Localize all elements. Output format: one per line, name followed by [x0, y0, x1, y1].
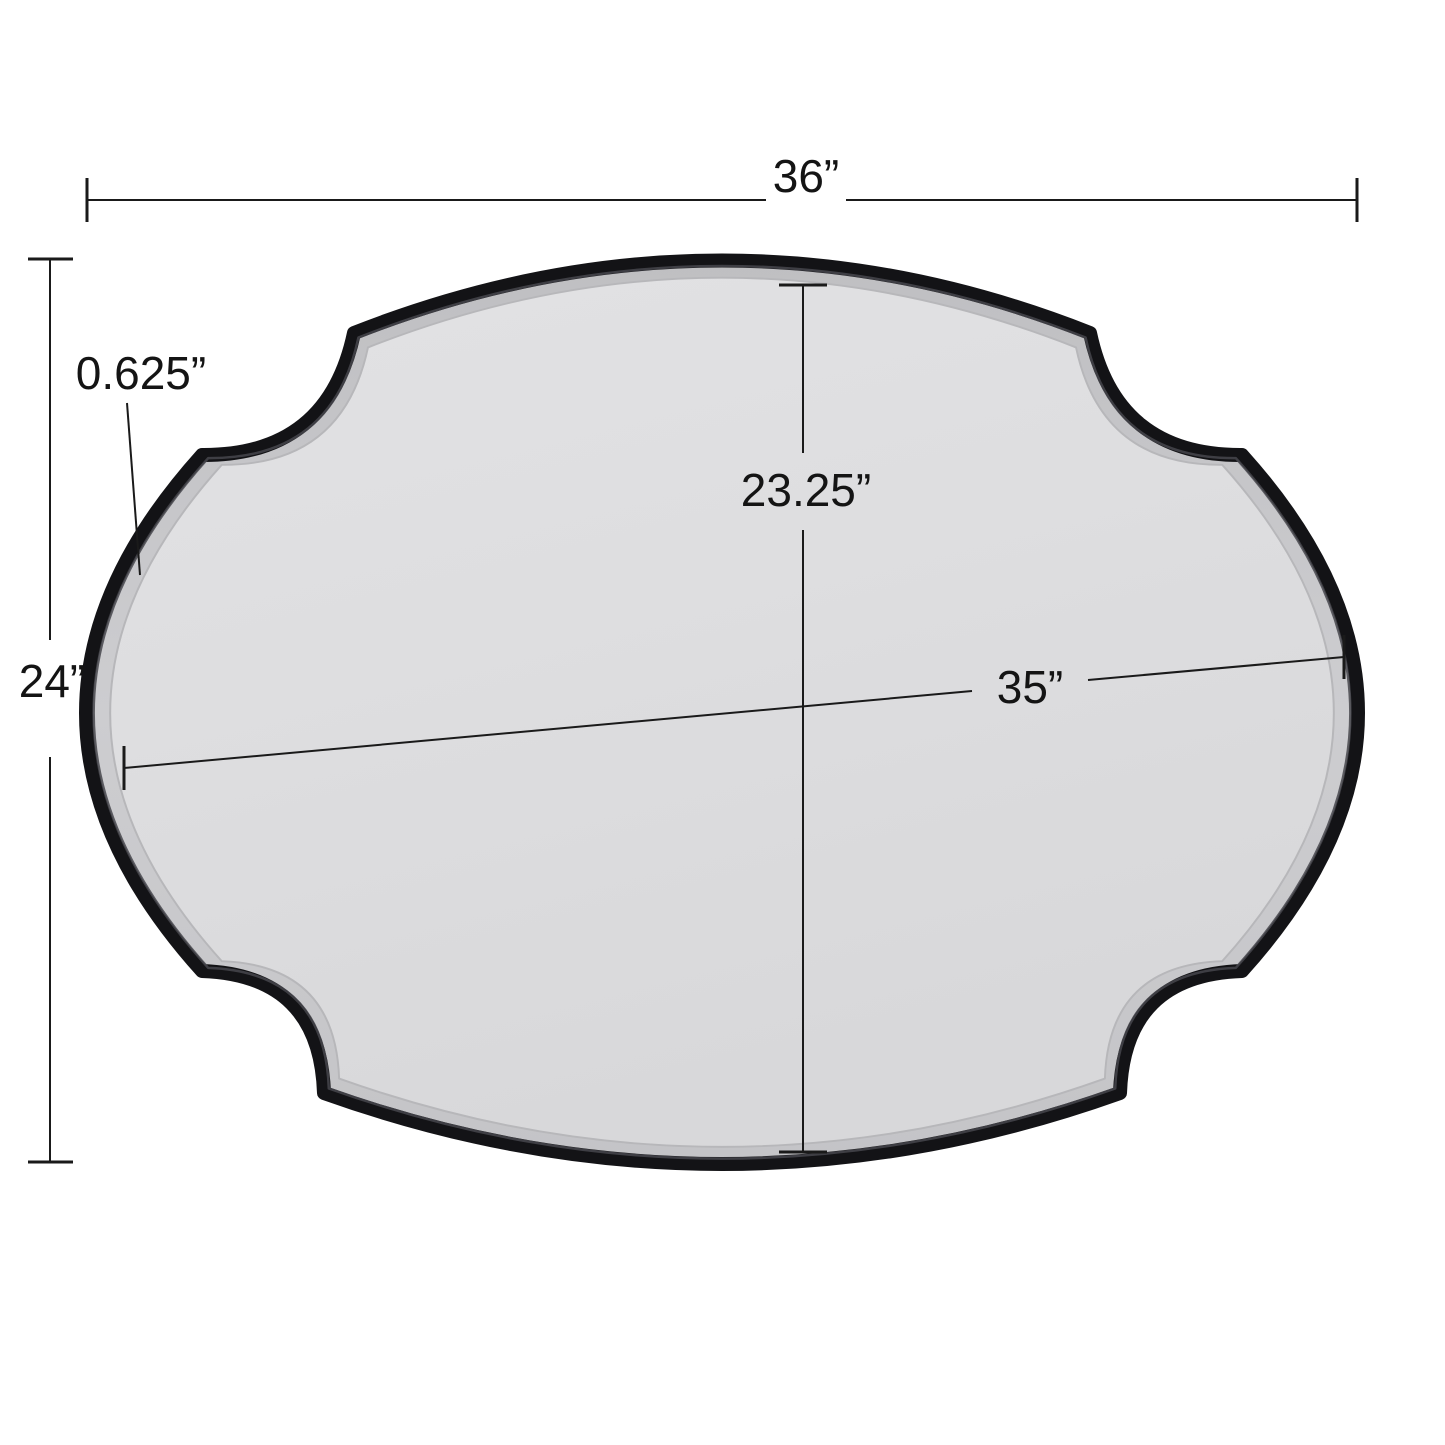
dimension-overall-width: 36” [87, 150, 1357, 222]
overall-height-label: 24” [19, 655, 85, 707]
product-dimension-diagram: 36” 24” 0.625” 23.25” [0, 0, 1445, 1445]
glass-width-label: 35” [997, 661, 1063, 713]
frame-depth-label: 0.625” [76, 347, 206, 399]
mirror [86, 261, 1358, 1165]
overall-width-label: 36” [773, 150, 839, 202]
diagram-canvas: 36” 24” 0.625” 23.25” [0, 0, 1445, 1445]
glass-height-label: 23.25” [741, 464, 871, 516]
